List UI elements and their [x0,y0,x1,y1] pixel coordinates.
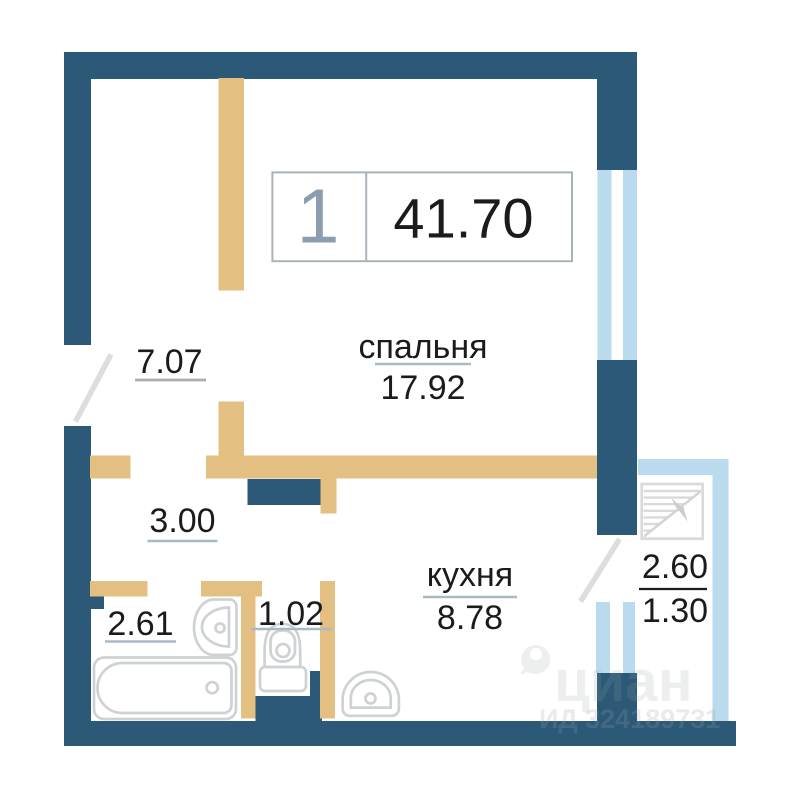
svg-text:7.07: 7.07 [136,343,202,381]
svg-text:2.61: 2.61 [107,605,173,643]
svg-text:41.70: 41.70 [393,187,533,250]
svg-text:17.92: 17.92 [380,369,465,407]
svg-text:спальня: спальня [358,328,487,366]
svg-text:1: 1 [297,174,340,260]
svg-text:кухня: кухня [427,556,513,594]
svg-text:2.60: 2.60 [642,548,708,586]
svg-text:ИД 324189731: ИД 324189731 [539,704,720,734]
svg-text:3.00: 3.00 [149,502,215,540]
svg-text:8.78: 8.78 [437,599,503,637]
svg-text:1.02: 1.02 [258,595,324,633]
svg-text:1.30: 1.30 [642,592,708,630]
